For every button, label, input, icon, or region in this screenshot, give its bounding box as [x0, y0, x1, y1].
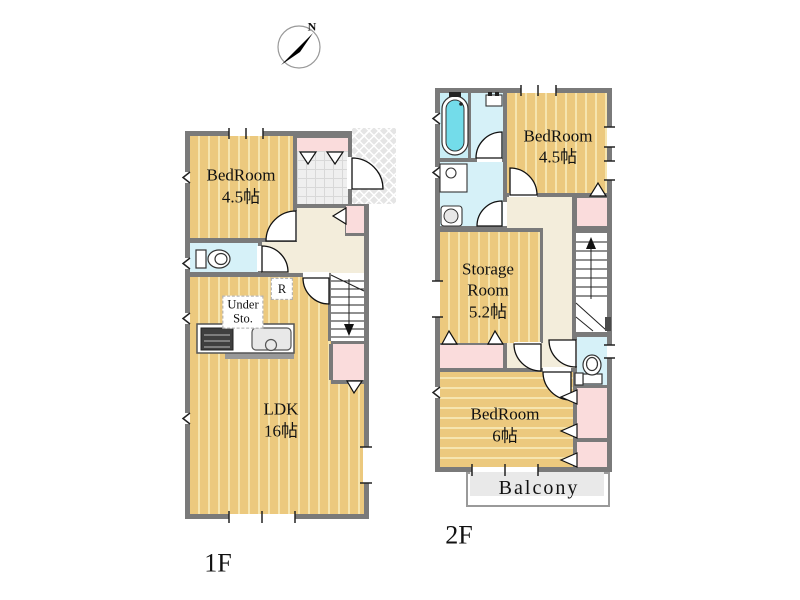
- entry-porch: [352, 128, 396, 204]
- bedroom-large-closet-1: [577, 388, 607, 438]
- storage-closet: [440, 345, 503, 368]
- understairs-closet: [333, 344, 364, 380]
- floor2-hall-bottom: [507, 343, 575, 368]
- floor2-toilet-room: [577, 337, 607, 385]
- floor1-toilet-room: [190, 243, 258, 272]
- bedroom-small-closet: [577, 198, 607, 226]
- floor1-hall-east: [345, 236, 364, 273]
- floor2-label: 2F: [445, 522, 472, 551]
- floor1-staircase: [331, 273, 364, 341]
- hall-closet: [346, 206, 364, 233]
- refrigerator-label: R: [271, 278, 293, 300]
- floor2-powder-room: [440, 162, 503, 226]
- entry-genkan: [297, 151, 348, 204]
- floor2-hall-top: [507, 197, 572, 228]
- floor1-bedroom-name: BedRoom: [207, 167, 276, 186]
- ldk-name: LDK: [264, 401, 299, 420]
- floor2-bedroom-small-name: BedRoom: [524, 128, 593, 147]
- floor1-hall-west: [262, 242, 328, 273]
- compass-north-label: N: [308, 20, 317, 33]
- floor2-bedroom-large-name: BedRoom: [471, 406, 540, 425]
- floor2-washroom: [471, 93, 503, 158]
- under-storage-label: UnderSto.: [222, 296, 263, 329]
- storage-room-size: 5.2帖: [469, 304, 507, 323]
- ldk-size: 16帖: [264, 423, 298, 442]
- storage-room-name-line1: Storage: [462, 261, 514, 280]
- floor2-bathroom: [440, 93, 468, 158]
- floor1-label: 1F: [204, 550, 231, 579]
- shoe-cabinet: [297, 138, 348, 151]
- floor2-bedroom-small-size: 4.5帖: [539, 149, 577, 168]
- bedroom-large-closet-2: [577, 442, 607, 467]
- floor2-hall-mid: [543, 228, 572, 343]
- floor2-bedroom-large-size: 6帖: [492, 428, 518, 447]
- floor2-staircase: [576, 233, 607, 332]
- floorplan-canvas: N BedRoom 4.5帖 LDK 16帖 UnderSto. R 1F Be…: [0, 0, 800, 600]
- floor1-bedroom-size: 4.5帖: [222, 189, 260, 208]
- plan-symbols: [0, 0, 800, 600]
- storage-room-name-line2: Room: [467, 282, 509, 301]
- balcony-label: Balcony: [499, 477, 580, 499]
